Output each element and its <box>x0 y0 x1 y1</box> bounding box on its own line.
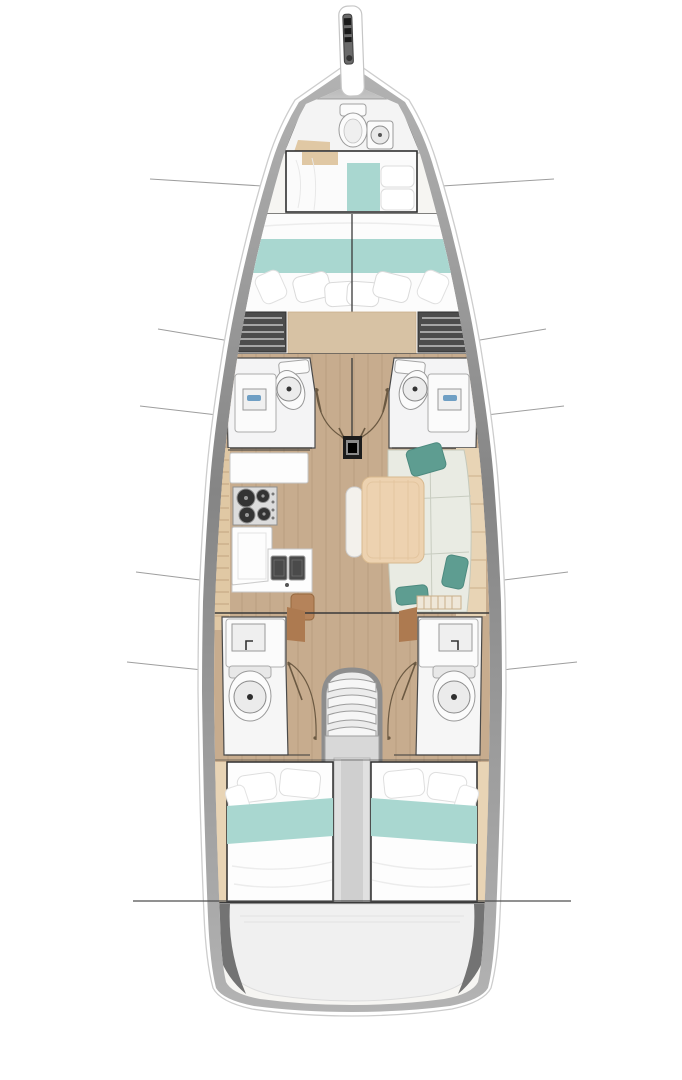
hull-section-line <box>442 179 554 186</box>
faucet-icon <box>285 583 289 587</box>
wood-door-panel <box>287 607 305 642</box>
aft-cabin-port <box>214 762 333 902</box>
forward-v-berth <box>226 214 478 354</box>
toilet-icon <box>339 104 367 147</box>
slatted-step <box>417 596 461 609</box>
engine-compartment <box>334 758 370 904</box>
teal-runner <box>347 163 380 211</box>
companionway <box>324 670 380 764</box>
bench-seat <box>346 487 363 557</box>
sink-vanity <box>226 619 285 667</box>
stern-platform <box>206 903 498 1001</box>
stove-icon <box>233 487 277 525</box>
shower-icon <box>367 121 393 149</box>
mast-step <box>343 436 362 459</box>
sink-vanity <box>235 374 276 432</box>
anchor-roller-icon <box>343 14 354 64</box>
headboard <box>302 152 338 165</box>
floor-plan-canvas <box>0 0 682 1080</box>
aft-cabin-starboard <box>371 762 490 902</box>
hull-section-line <box>150 179 262 186</box>
pillow <box>381 189 414 210</box>
counter <box>230 453 308 483</box>
dining-table <box>362 477 424 563</box>
toilet-icon <box>229 666 271 721</box>
bowsprit <box>338 6 364 97</box>
wood-step <box>288 312 416 354</box>
yacht-floor-plan <box>0 0 682 1080</box>
pillow <box>381 166 414 187</box>
teal-band <box>227 798 333 844</box>
